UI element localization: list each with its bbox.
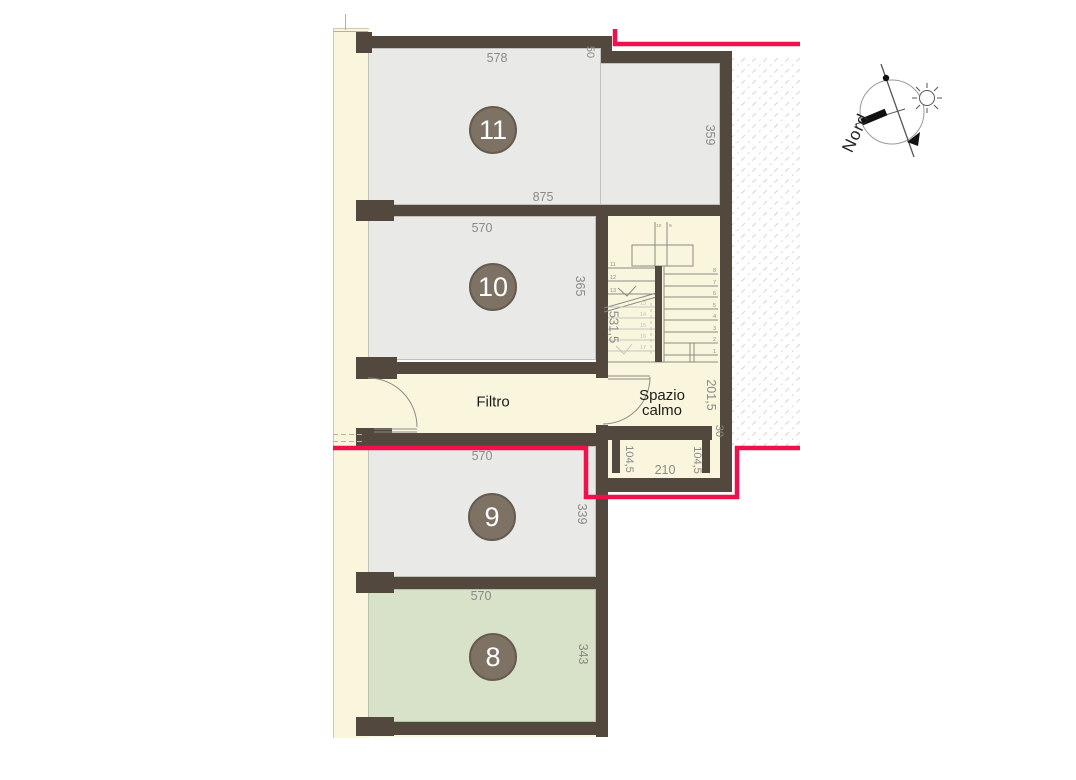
dim-570-room10: 570 bbox=[472, 221, 493, 235]
stair-divider-wall bbox=[655, 266, 662, 362]
dim-201-5: 201,5 bbox=[704, 379, 718, 410]
stair-step-15: 15 bbox=[640, 323, 646, 329]
stair-top-label-10: 10 bbox=[656, 223, 662, 229]
strip-lines bbox=[333, 14, 368, 442]
stair-top-label-9: 9 bbox=[669, 223, 672, 229]
compass-dot bbox=[883, 75, 889, 81]
stair-step-12: 12 bbox=[610, 275, 616, 281]
dim-343: 343 bbox=[576, 644, 590, 665]
dim-50: 50 bbox=[584, 46, 596, 58]
floor-plan: 10 9 11 12 13 13 14 15 16 17 8 7 6 5 4 3… bbox=[0, 0, 1076, 780]
escape-route-lines bbox=[333, 29, 800, 497]
stair-step-1: 1 bbox=[713, 349, 716, 355]
escape-route-top bbox=[615, 29, 800, 44]
dim-104-5-left: 104,5 bbox=[623, 445, 635, 473]
dim-570-room8: 570 bbox=[471, 589, 492, 603]
stair-step-8: 8 bbox=[713, 268, 716, 274]
dim-365: 365 bbox=[573, 276, 587, 297]
stair-step-17: 17 bbox=[640, 345, 646, 351]
dim-578: 578 bbox=[487, 51, 508, 65]
dim-104-5-right: 104,5 bbox=[691, 446, 703, 474]
stair-step-11: 11 bbox=[610, 262, 616, 268]
dim-570-room9: 570 bbox=[472, 449, 493, 463]
room-badge-8: 8 bbox=[469, 633, 517, 681]
hatch-exterior-zone bbox=[732, 56, 800, 448]
corridor-label: Filtro bbox=[476, 394, 509, 411]
compass bbox=[856, 64, 942, 157]
dim-875: 875 bbox=[533, 190, 554, 204]
stair-step-4: 4 bbox=[713, 314, 716, 320]
room-badge-9: 9 bbox=[468, 493, 516, 541]
dim-531-5: 531,5 bbox=[607, 311, 622, 344]
stair-step-7: 7 bbox=[713, 280, 716, 286]
compass-circle bbox=[860, 80, 924, 144]
dim-359: 359 bbox=[703, 125, 717, 146]
calm-space-label: Spazio calmo bbox=[631, 388, 693, 418]
sun-icon bbox=[912, 83, 942, 113]
stair-step-5: 5 bbox=[713, 303, 716, 309]
dim-339: 339 bbox=[575, 504, 589, 525]
stair-step-6: 6 bbox=[713, 291, 716, 297]
linework-overlay: 10 9 11 12 13 13 14 15 16 17 8 7 6 5 4 3… bbox=[0, 0, 1076, 780]
dim-30: 30 bbox=[713, 425, 725, 437]
room-badge-11: 11 bbox=[469, 106, 517, 154]
stair-step-16: 16 bbox=[640, 334, 646, 340]
dim-210: 210 bbox=[655, 463, 676, 477]
stair-step-14: 14 bbox=[640, 312, 646, 318]
stair-step-13b: 13 bbox=[640, 301, 646, 307]
escape-route-middle bbox=[333, 448, 800, 497]
stair-step-13: 13 bbox=[610, 288, 616, 294]
stair-step-3: 3 bbox=[713, 326, 716, 332]
stair-step-2: 2 bbox=[713, 337, 716, 343]
room-badge-10: 10 bbox=[469, 263, 517, 311]
